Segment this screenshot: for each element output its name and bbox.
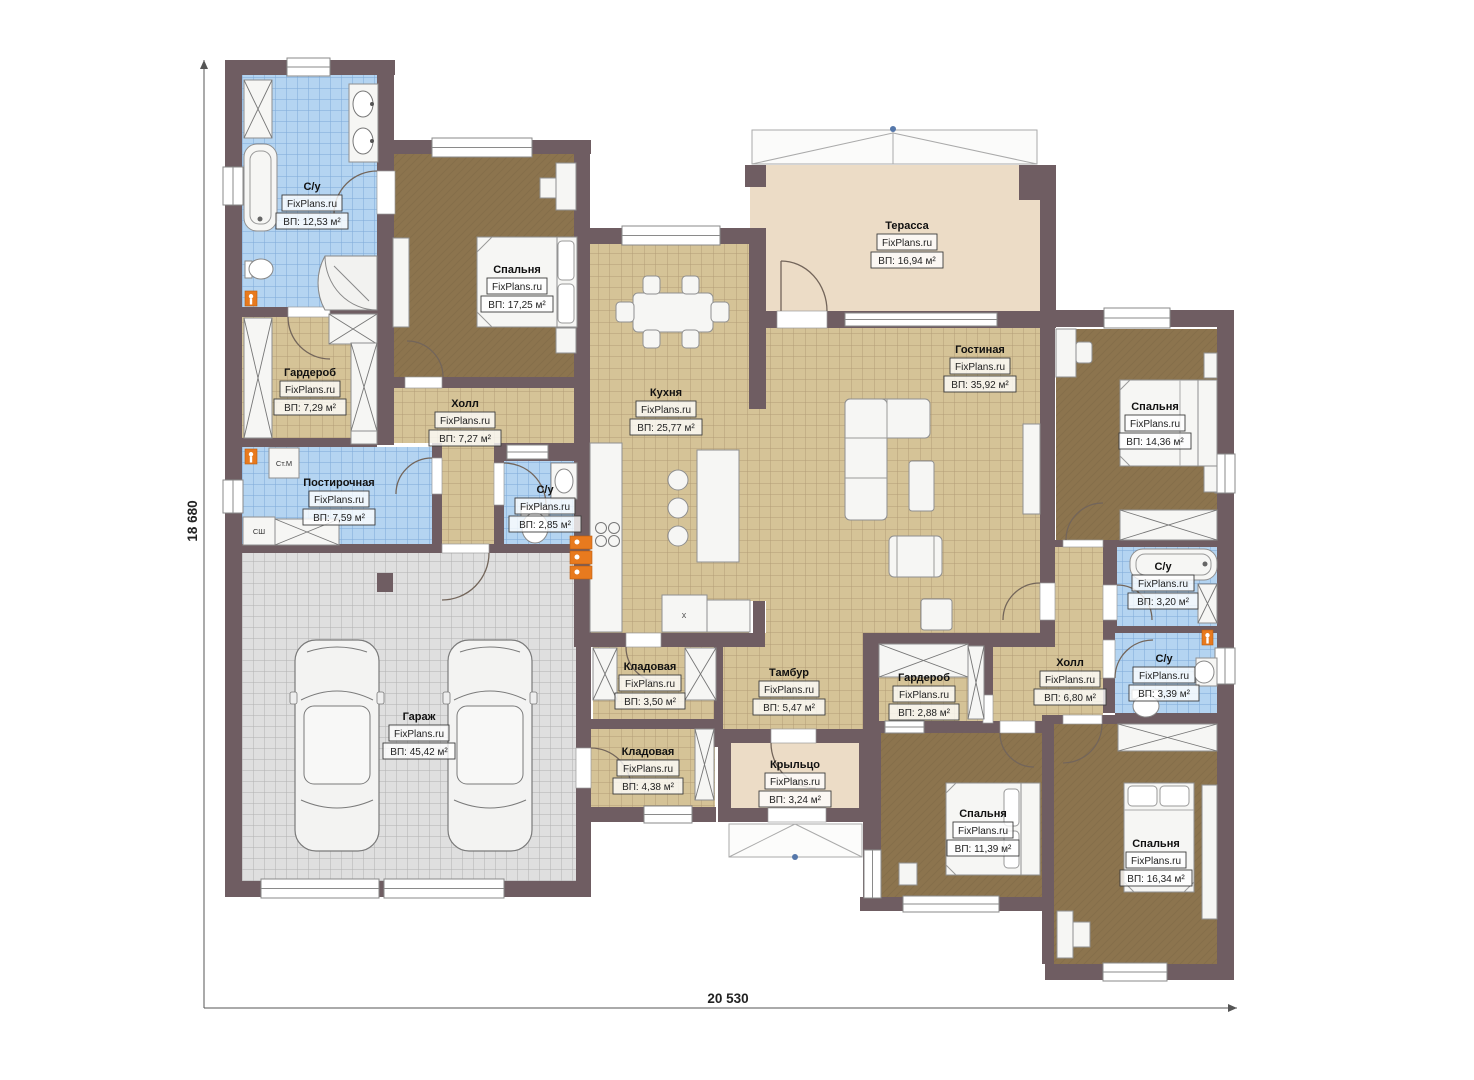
svg-text:Постирочная: Постирочная <box>303 477 374 489</box>
svg-text:Гостиная: Гостиная <box>955 344 1005 356</box>
svg-text:СШ: СШ <box>253 527 265 536</box>
svg-text:x: x <box>682 610 687 620</box>
svg-text:ВП: 16,94 м²: ВП: 16,94 м² <box>878 256 936 267</box>
svg-text:Спальня: Спальня <box>1132 838 1180 850</box>
svg-text:ВП: 16,34 м²: ВП: 16,34 м² <box>1127 874 1185 885</box>
svg-text:ВП: 3,39 м²: ВП: 3,39 м² <box>1138 689 1191 700</box>
svg-text:18 680: 18 680 <box>185 500 200 541</box>
svg-text:FixPlans.ru: FixPlans.ru <box>440 416 490 427</box>
svg-text:FixPlans.ru: FixPlans.ru <box>1130 419 1180 430</box>
svg-text:Спальня: Спальня <box>959 808 1007 820</box>
svg-text:FixPlans.ru: FixPlans.ru <box>1139 671 1189 682</box>
svg-text:FixPlans.ru: FixPlans.ru <box>899 690 949 701</box>
svg-text:ВП: 11,39 м²: ВП: 11,39 м² <box>955 844 1012 855</box>
svg-text:FixPlans.ru: FixPlans.ru <box>882 238 932 249</box>
svg-text:С/у: С/у <box>536 484 554 496</box>
svg-text:FixPlans.ru: FixPlans.ru <box>287 199 337 210</box>
svg-text:FixPlans.ru: FixPlans.ru <box>764 685 814 696</box>
svg-text:Спальня: Спальня <box>1131 401 1179 413</box>
svg-text:ВП: 2,85 м²: ВП: 2,85 м² <box>519 520 572 531</box>
svg-text:ВП: 3,24 м²: ВП: 3,24 м² <box>769 795 822 806</box>
svg-text:FixPlans.ru: FixPlans.ru <box>955 362 1005 373</box>
svg-text:FixPlans.ru: FixPlans.ru <box>1131 856 1181 867</box>
svg-text:FixPlans.ru: FixPlans.ru <box>1138 579 1188 590</box>
svg-text:ВП: 14,36 м²: ВП: 14,36 м² <box>1126 437 1184 448</box>
svg-text:Ст.М: Ст.М <box>276 459 292 468</box>
svg-text:ВП: 7,27 м²: ВП: 7,27 м² <box>439 434 492 445</box>
svg-text:FixPlans.ru: FixPlans.ru <box>770 777 820 788</box>
svg-text:ВП: 3,50 м²: ВП: 3,50 м² <box>624 697 677 708</box>
svg-text:ВП: 7,59 м²: ВП: 7,59 м² <box>313 513 366 524</box>
svg-text:ВП: 12,53 м²: ВП: 12,53 м² <box>283 217 341 228</box>
svg-text:ВП: 5,47 м²: ВП: 5,47 м² <box>763 703 816 714</box>
svg-text:Гардероб: Гардероб <box>284 367 336 379</box>
svg-text:Кладовая: Кладовая <box>624 661 677 673</box>
svg-text:FixPlans.ru: FixPlans.ru <box>394 729 444 740</box>
svg-text:С/у: С/у <box>303 181 321 193</box>
svg-text:FixPlans.ru: FixPlans.ru <box>623 764 673 775</box>
svg-text:FixPlans.ru: FixPlans.ru <box>285 385 335 396</box>
svg-text:Кухня: Кухня <box>650 387 682 399</box>
svg-text:20 530: 20 530 <box>707 991 748 1006</box>
svg-text:FixPlans.ru: FixPlans.ru <box>625 679 675 690</box>
svg-text:FixPlans.ru: FixPlans.ru <box>314 495 364 506</box>
svg-text:С/у: С/у <box>1154 561 1172 573</box>
svg-text:ВП: 25,77 м²: ВП: 25,77 м² <box>637 423 695 434</box>
svg-text:ВП: 3,20 м²: ВП: 3,20 м² <box>1137 597 1190 608</box>
svg-text:FixPlans.ru: FixPlans.ru <box>520 502 570 513</box>
svg-text:Спальня: Спальня <box>493 264 541 276</box>
svg-text:ВП: 17,25 м²: ВП: 17,25 м² <box>488 300 546 311</box>
svg-text:С/у: С/у <box>1155 653 1173 665</box>
svg-text:ВП: 4,38 м²: ВП: 4,38 м² <box>622 782 675 793</box>
svg-text:FixPlans.ru: FixPlans.ru <box>641 405 691 416</box>
svg-text:ВП: 45,42 м²: ВП: 45,42 м² <box>390 747 448 758</box>
svg-text:Гардероб: Гардероб <box>898 672 950 684</box>
svg-text:ВП: 2,88 м²: ВП: 2,88 м² <box>898 708 951 719</box>
svg-text:FixPlans.ru: FixPlans.ru <box>958 826 1008 837</box>
svg-text:Гараж: Гараж <box>403 711 436 723</box>
svg-text:ВП: 35,92 м²: ВП: 35,92 м² <box>951 380 1009 391</box>
svg-text:ВП: 6,80 м²: ВП: 6,80 м² <box>1044 693 1097 704</box>
svg-text:Терасса: Терасса <box>885 220 929 232</box>
svg-text:Крыльцо: Крыльцо <box>770 759 820 771</box>
svg-text:Кладовая: Кладовая <box>622 746 675 758</box>
svg-text:ВП: 7,29 м²: ВП: 7,29 м² <box>284 403 337 414</box>
svg-text:Холл: Холл <box>451 398 479 410</box>
svg-text:Холл: Холл <box>1056 657 1084 669</box>
svg-text:FixPlans.ru: FixPlans.ru <box>492 282 542 293</box>
svg-text:FixPlans.ru: FixPlans.ru <box>1045 675 1095 686</box>
svg-text:Тамбур: Тамбур <box>769 667 809 679</box>
